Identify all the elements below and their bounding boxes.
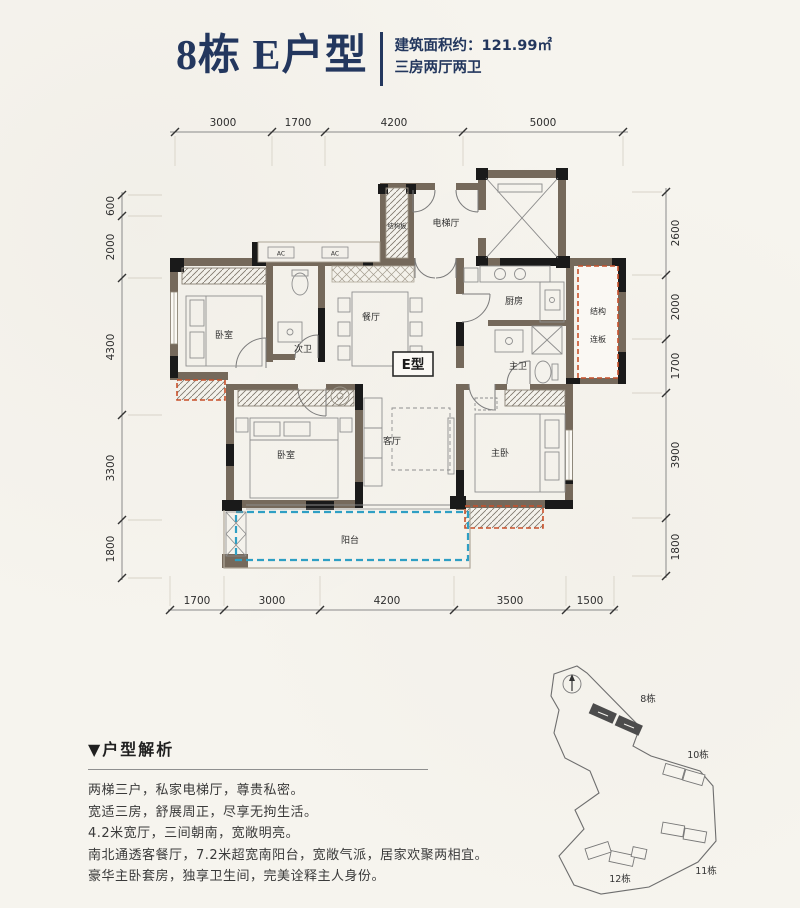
analysis-section: ▼户型解析 两梯三户，私家电梯厅，尊贵私密。 宽适三房，舒展周正，尽享无拘生活。… — [88, 736, 648, 888]
dimension-label: 5000 — [530, 117, 557, 129]
room-label-bedroom1: 卧室 — [215, 329, 233, 341]
structure-slab — [332, 266, 414, 282]
site-building-8 — [589, 703, 643, 736]
analysis-header: ▼户型解析 — [88, 736, 648, 760]
dimension-label: 4200 — [374, 595, 401, 607]
analysis-line: 两梯三户，私家电梯厅，尊贵私密。 — [88, 780, 648, 802]
site-label-building-8: 8栋 — [640, 693, 656, 705]
structure-panel-box — [578, 266, 618, 378]
analysis-line: 宽适三房，舒展周正，尽享无拘生活。 — [88, 802, 648, 824]
dimension-label: 4300 — [105, 334, 117, 361]
flower-box-right — [465, 506, 543, 528]
room-label-bath2: 次卫 — [294, 343, 312, 355]
room-label-dining: 餐厅 — [362, 311, 380, 323]
dimension-label: 2000 — [105, 234, 117, 261]
ac-label: AC — [331, 251, 339, 258]
room-label-bedroom2: 卧室 — [277, 449, 295, 461]
room-label-kitchen: 厨房 — [505, 295, 523, 307]
dimension-label: 1800 — [105, 536, 117, 563]
ac-label: AC — [277, 251, 285, 258]
dimension-label: 1700 — [184, 595, 211, 607]
dimension-label: 1800 — [670, 534, 682, 561]
structure-panel-label-2: 连板 — [590, 334, 606, 344]
dimension-label: 1700 — [285, 117, 312, 129]
room-label-elevator-hall: 电梯厅 — [432, 217, 459, 229]
dimension-label: 600 — [105, 196, 117, 216]
room-label-structure-board: 结构板 — [388, 221, 408, 230]
dimension-label: 3900 — [670, 442, 682, 469]
dimension-label: 4200 — [381, 117, 408, 129]
room-label-balcony: 阳台 — [341, 534, 359, 546]
structure-panel-label-1: 结构 — [590, 306, 606, 316]
dimension-label: 1700 — [670, 353, 682, 380]
site-label-building-11: 11栋 — [695, 865, 717, 877]
unit-tag-label: E型 — [402, 356, 425, 373]
floorplan-page: 8栋 E户型 建筑面积约：121.99㎡ 三房两厅两卫 — [0, 0, 800, 908]
site-building-10 — [663, 763, 705, 785]
room-label-living: 客厅 — [383, 435, 401, 447]
dimension-label: 2000 — [670, 294, 682, 321]
dimension-label: 3300 — [105, 455, 117, 482]
elevator-shaft — [486, 178, 558, 258]
dimension-label: 3000 — [210, 117, 237, 129]
site-label-building-10: 10栋 — [687, 749, 709, 761]
analysis-line: 4.2米宽厅，三间朝南，宽敞明亮。 — [88, 823, 648, 845]
dimension-label: 3500 — [497, 595, 524, 607]
north-arrow-icon — [563, 674, 581, 693]
room-label-master-bedroom: 主卧 — [491, 447, 509, 459]
dimension-label: 1500 — [577, 595, 604, 607]
analysis-divider — [88, 769, 428, 770]
unit-tag: E型 — [393, 352, 433, 376]
analysis-line: 豪华主卧套房，独享卫生间，完美诠释主人身份。 — [88, 866, 648, 888]
analysis-line: 南北通透客餐厅，7.2米超宽南阳台，宽敞气派，居家欢聚两相宜。 — [88, 845, 648, 867]
room-label-master-bath: 主卫 — [509, 360, 527, 372]
dimension-label: 3000 — [259, 595, 286, 607]
flower-box-left — [177, 380, 225, 400]
dimension-label: 2600 — [670, 220, 682, 247]
site-building-11 — [661, 822, 707, 843]
